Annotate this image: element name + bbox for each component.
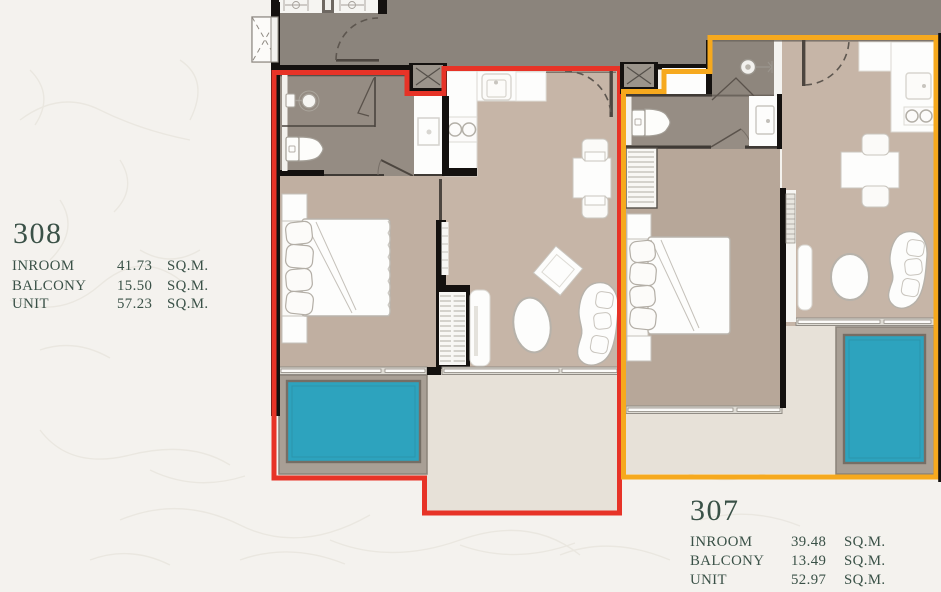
svg-text:UNIT: UNIT	[12, 296, 49, 312]
svg-text:15.50: 15.50	[117, 278, 152, 294]
svg-text:52.97: 52.97	[791, 572, 826, 588]
svg-text:SQ.M.: SQ.M.	[167, 278, 208, 294]
svg-text:UNIT: UNIT	[690, 572, 727, 588]
svg-text:SQ.M.: SQ.M.	[167, 296, 208, 312]
svg-text:39.48: 39.48	[791, 534, 826, 550]
svg-text:BALCONY: BALCONY	[690, 553, 764, 569]
svg-text:SQ.M.: SQ.M.	[167, 258, 208, 274]
svg-text:SQ.M.: SQ.M.	[844, 553, 885, 569]
svg-text:BALCONY: BALCONY	[12, 278, 86, 294]
svg-text:INROOM: INROOM	[12, 258, 74, 274]
svg-text:57.23: 57.23	[117, 296, 152, 312]
svg-text:307: 307	[690, 494, 740, 527]
svg-text:41.73: 41.73	[117, 258, 152, 274]
svg-text:308: 308	[13, 217, 63, 250]
svg-text:SQ.M.: SQ.M.	[844, 534, 885, 550]
svg-text:13.49: 13.49	[791, 553, 826, 569]
svg-text:SQ.M.: SQ.M.	[844, 572, 885, 588]
svg-text:INROOM: INROOM	[690, 534, 752, 550]
